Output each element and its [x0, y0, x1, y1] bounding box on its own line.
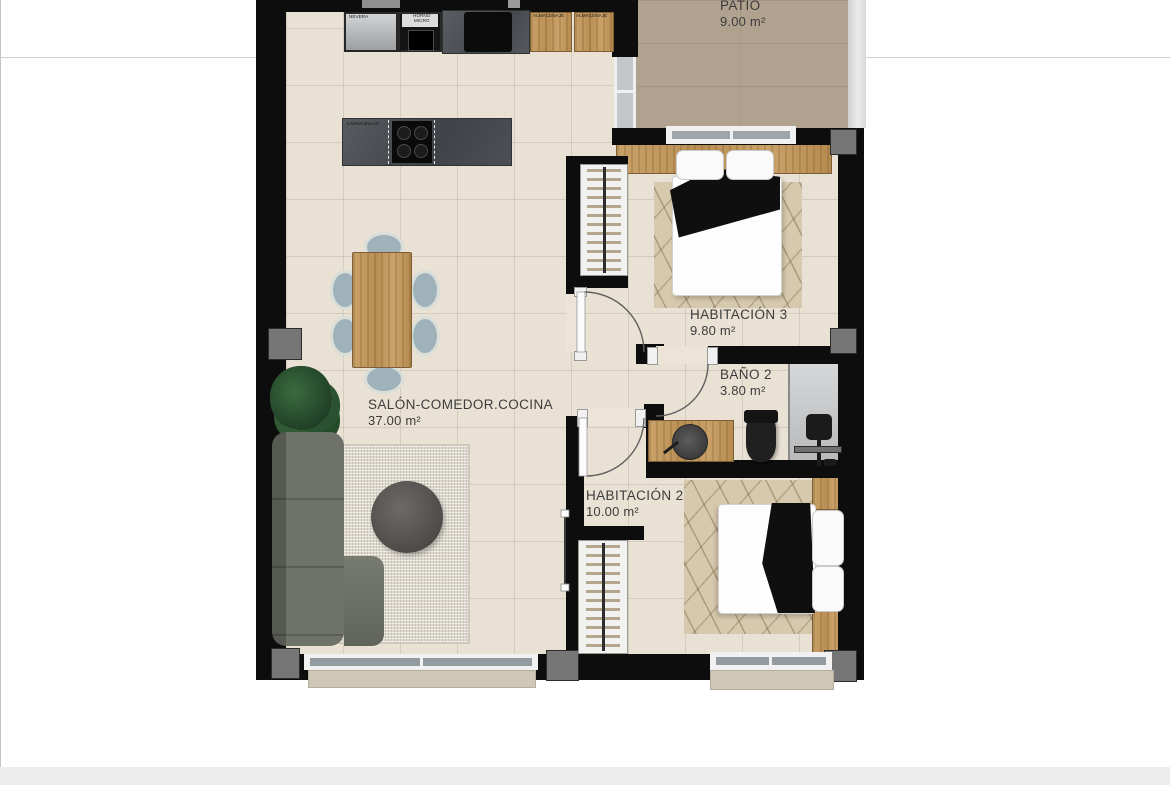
- door-leaf-hab3: [577, 292, 585, 352]
- floor-plan-page: NEVERA HORNO MICRO ALMACENAJE ALMACENAJE…: [0, 0, 1170, 785]
- door-leaf-hab2: [579, 418, 587, 476]
- room-area: 9.00 m²: [720, 14, 765, 30]
- room-label-habitacion3: HABITACIÓN 3 9.80 m²: [690, 307, 788, 339]
- slider-jamb: [561, 584, 569, 591]
- door-arc-hab2: [586, 418, 644, 476]
- room-area: 10.00 m²: [586, 504, 684, 520]
- room-name: PATIO: [720, 0, 761, 13]
- door-arc-bath: [656, 364, 708, 416]
- room-name: SALÓN-COMEDOR.COCINA: [368, 397, 553, 412]
- room-area: 3.80 m²: [720, 383, 772, 399]
- door-arcs-layer: [0, 0, 1170, 785]
- room-name: HABITACIÓN 2: [586, 488, 684, 503]
- room-label-bano2: BAÑO 2 3.80 m²: [720, 367, 772, 399]
- door-arc-hab3: [584, 292, 644, 352]
- room-label-patio: PATIO 9.00 m²: [720, 0, 765, 30]
- room-name: BAÑO 2: [720, 367, 772, 382]
- room-area: 9.80 m²: [690, 323, 788, 339]
- room-label-salon: SALÓN-COMEDOR.COCINA 37.00 m²: [368, 397, 553, 429]
- room-area: 37.00 m²: [368, 413, 553, 429]
- slider-jamb: [561, 510, 569, 517]
- room-name: HABITACIÓN 3: [690, 307, 788, 322]
- room-label-habitacion2: HABITACIÓN 2 10.00 m²: [586, 488, 684, 520]
